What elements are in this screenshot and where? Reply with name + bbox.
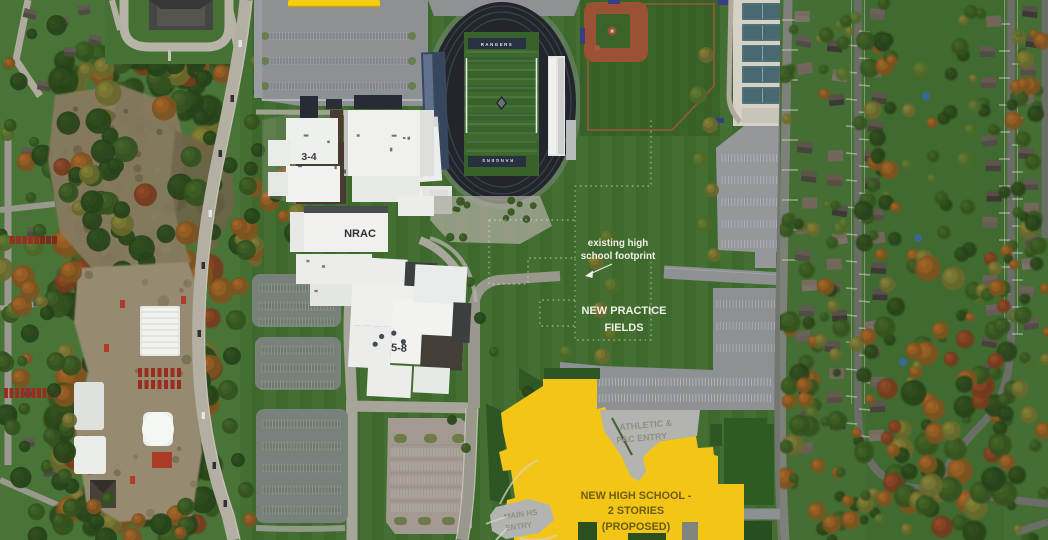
svg-text:NRAC: NRAC <box>344 228 376 240</box>
svg-text:school footprint: school footprint <box>581 251 656 262</box>
svg-text:2 STORIES: 2 STORIES <box>608 505 664 517</box>
svg-text:existing high: existing high <box>588 238 648 249</box>
svg-text:RANGERS: RANGERS <box>481 158 513 163</box>
svg-text:(PROPOSED): (PROPOSED) <box>602 521 671 533</box>
svg-text:NEW HIGH SCHOOL -: NEW HIGH SCHOOL - <box>581 490 692 502</box>
svg-text:NEW PRACTICE: NEW PRACTICE <box>582 305 667 317</box>
svg-text:3-4: 3-4 <box>301 151 316 163</box>
svg-text:RANGERS: RANGERS <box>481 42 513 47</box>
svg-text:FIELDS: FIELDS <box>604 322 643 334</box>
svg-text:5-8: 5-8 <box>391 342 408 355</box>
